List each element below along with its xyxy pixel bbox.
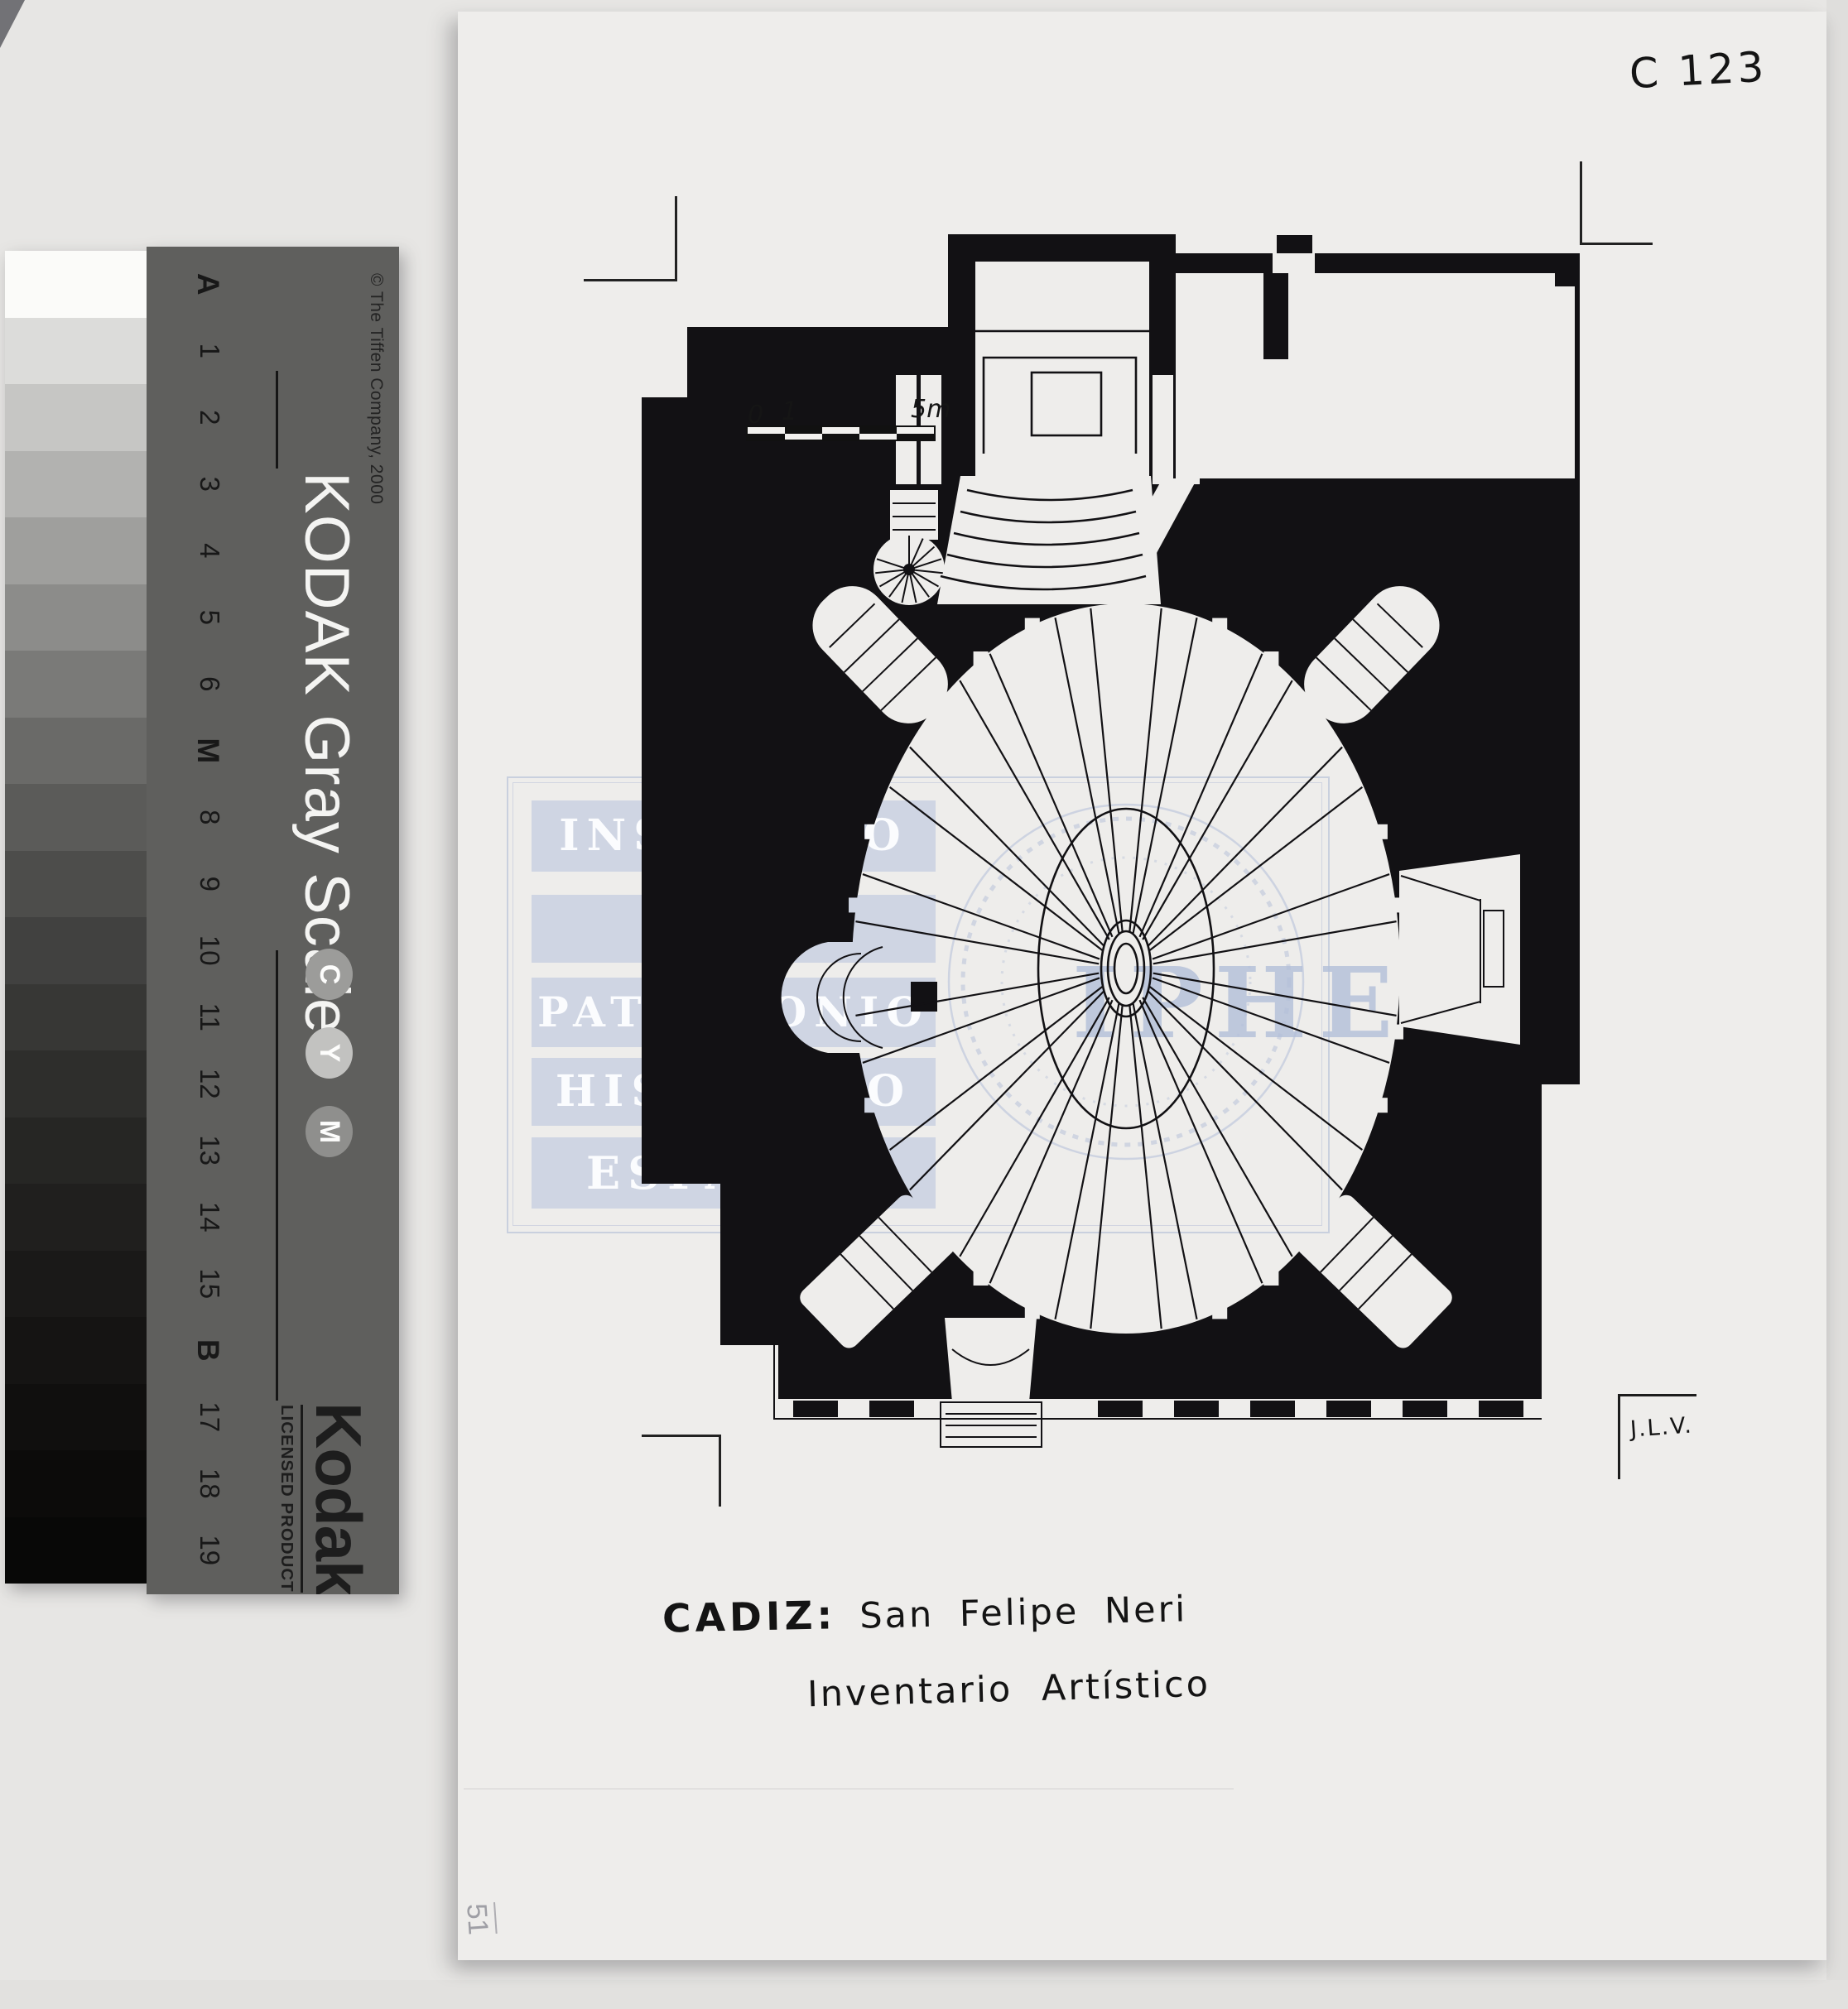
gray-step-patch xyxy=(5,517,147,584)
scale-label-5m: 5m xyxy=(911,395,950,424)
gray-step-patch xyxy=(5,851,147,918)
gray-step-patch xyxy=(5,384,147,451)
gray-step-patch xyxy=(5,784,147,851)
gray-step-patch xyxy=(5,1450,147,1517)
gray-step-patch xyxy=(5,1251,147,1318)
wall-stub xyxy=(1263,273,1288,359)
scale-bar xyxy=(748,427,934,440)
gray-step-patch xyxy=(5,984,147,1051)
step-label: 17 xyxy=(194,1401,225,1432)
archive-code: C 123 xyxy=(1629,43,1769,99)
cym-badge-y: Y xyxy=(306,1027,353,1079)
step-label: 3 xyxy=(194,477,225,492)
gray-step-patch xyxy=(5,318,147,385)
kodak-logo: Kodak xyxy=(301,1402,376,1594)
title-rule-left xyxy=(276,371,278,469)
scale-bar-cell xyxy=(822,434,859,440)
step-label: 11 xyxy=(194,1003,225,1031)
gray-step-patch xyxy=(5,651,147,718)
corner-mark-bottom-left xyxy=(642,1435,721,1507)
pencil-note: 51 xyxy=(460,1902,498,1936)
kodak-gray-scale-card: © The Tiffen Company, 2000 KODAK Gray Sc… xyxy=(3,247,399,1594)
step-label: B xyxy=(190,1339,225,1362)
scale-bar-cell xyxy=(785,434,822,440)
corner-mark-top-left xyxy=(584,196,677,281)
scale-label-0: 0 xyxy=(748,401,763,430)
cym-badge-c: C xyxy=(306,949,353,1000)
scale-bar-cell xyxy=(897,434,934,440)
card-rotated-content: © The Tiffen Company, 2000 KODAK Gray Sc… xyxy=(147,247,399,1594)
facade-pilaster-blocks xyxy=(793,1401,1523,1417)
caption-location: CADIZ: xyxy=(662,1593,836,1641)
title-rule-right xyxy=(276,950,278,1401)
step-label: 1 xyxy=(194,344,225,358)
step-label: 8 xyxy=(194,810,225,824)
cym-badge-m: M xyxy=(306,1106,353,1157)
gray-step-patches xyxy=(5,251,147,1584)
gray-step-patch xyxy=(5,1317,147,1384)
signature-box: J.L.V. xyxy=(1618,1394,1696,1479)
gray-step-patch xyxy=(5,917,147,984)
west-chapel-pier xyxy=(911,982,937,1012)
step-label: 19 xyxy=(194,1535,225,1565)
step-label: 18 xyxy=(194,1468,225,1499)
gray-step-patch xyxy=(5,1050,147,1117)
step-label: 14 xyxy=(194,1202,225,1233)
scanned-archive-photograph: { "archive": { "reference_code": "C 123"… xyxy=(0,0,1848,2009)
step-label: 6 xyxy=(194,676,225,691)
scale-bar-cell xyxy=(897,427,934,434)
scale-bar-cell xyxy=(748,434,785,440)
step-label: 10 xyxy=(194,935,225,966)
step-label: 15 xyxy=(194,1268,225,1299)
step-label: A xyxy=(190,273,225,296)
kodak-licensed-label: LICENSED PRODUCT xyxy=(277,1405,303,1593)
step-label: 12 xyxy=(194,1069,225,1099)
corner-mark-top-right xyxy=(1580,161,1653,245)
gray-step-patch xyxy=(5,1384,147,1451)
step-label: 2 xyxy=(194,410,225,425)
gray-step-patch xyxy=(5,1117,147,1185)
wall-end-step xyxy=(1555,273,1580,286)
step-label: 4 xyxy=(194,543,225,558)
gray-step-patch xyxy=(5,1517,147,1584)
gray-step-patch xyxy=(5,1184,147,1251)
caption-title: San Felipe Neri xyxy=(859,1588,1188,1637)
card-copyright: © The Tiffen Company, 2000 xyxy=(366,273,386,504)
step-label: 5 xyxy=(194,610,225,625)
card-label-panel: © The Tiffen Company, 2000 KODAK Gray Sc… xyxy=(147,247,399,1594)
gray-step-patch xyxy=(5,451,147,518)
scale-label-1: 1 xyxy=(782,397,797,426)
scale-bar-cell xyxy=(859,427,897,434)
step-label: M xyxy=(190,738,225,763)
gray-step-patch xyxy=(5,251,147,318)
gray-step-patch xyxy=(5,584,147,651)
doorway-tick xyxy=(1277,235,1312,253)
scale-bar-cell xyxy=(822,427,859,434)
scale-bar-cell xyxy=(785,427,822,434)
signature-initials: J.L.V. xyxy=(1629,1412,1694,1442)
step-label: 13 xyxy=(194,1135,225,1166)
scale-bar-cell xyxy=(859,434,897,440)
step-label: 9 xyxy=(194,877,225,892)
scale-bar-cell xyxy=(748,427,785,434)
gray-step-patch xyxy=(5,718,147,785)
